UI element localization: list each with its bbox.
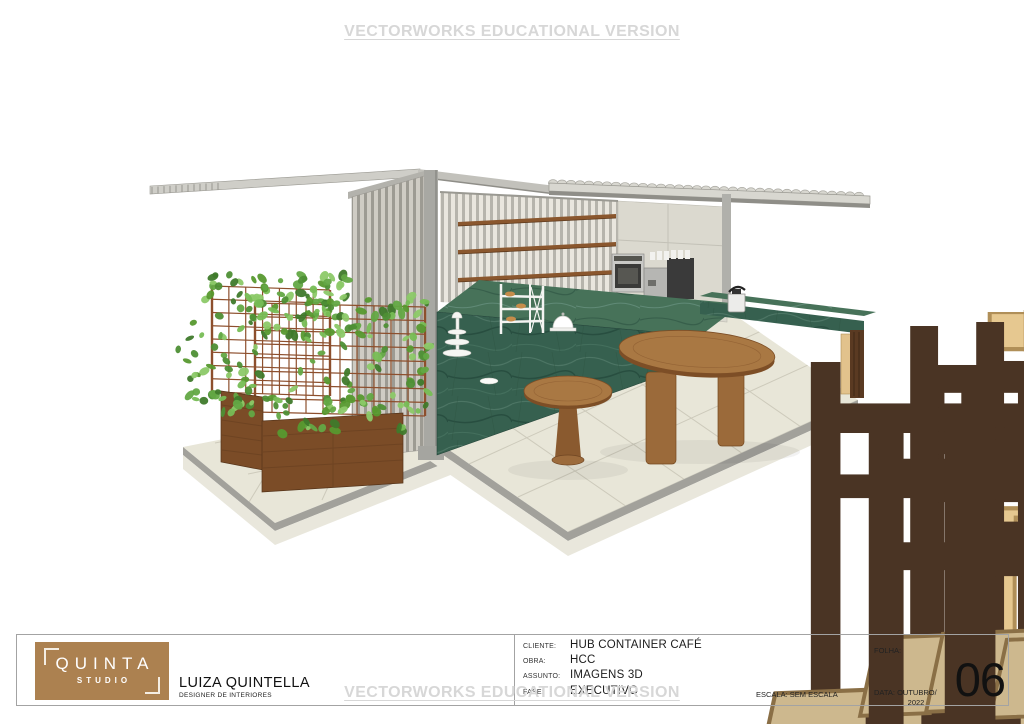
- coffee-machine: [644, 250, 694, 299]
- field-cliente: CLIENTE: HUB CONTAINER CAFÉ: [523, 639, 702, 654]
- corner-bracket-icon: [44, 648, 59, 665]
- watermark-top: VECTORWORKS EDUCATIONAL VERSION: [0, 23, 1024, 41]
- field-obra: OBRA: HCC: [523, 654, 702, 669]
- oven: [612, 254, 644, 292]
- drawing-sheet: VECTORWORKS EDUCATIONAL VERSION: [0, 0, 1024, 724]
- kettle: [728, 287, 745, 312]
- field-value: IMAGENS 3D: [570, 669, 643, 681]
- sheet-label: FOLHA:: [874, 646, 901, 655]
- cafe-3d-render: [0, 0, 1024, 724]
- field-value: HCC: [570, 654, 596, 666]
- field-assunto: ASSUNTO: IMAGENS 3D: [523, 669, 702, 684]
- field-value: HUB CONTAINER CAFÉ: [570, 639, 702, 651]
- watermark-bottom: VECTORWORKS EDUCATIONAL VERSION: [0, 684, 1024, 702]
- field-label: ASSUNTO:: [523, 673, 570, 680]
- counter-plate: [480, 378, 498, 384]
- field-label: CLIENTE:: [523, 643, 570, 650]
- field-label: OBRA:: [523, 658, 570, 665]
